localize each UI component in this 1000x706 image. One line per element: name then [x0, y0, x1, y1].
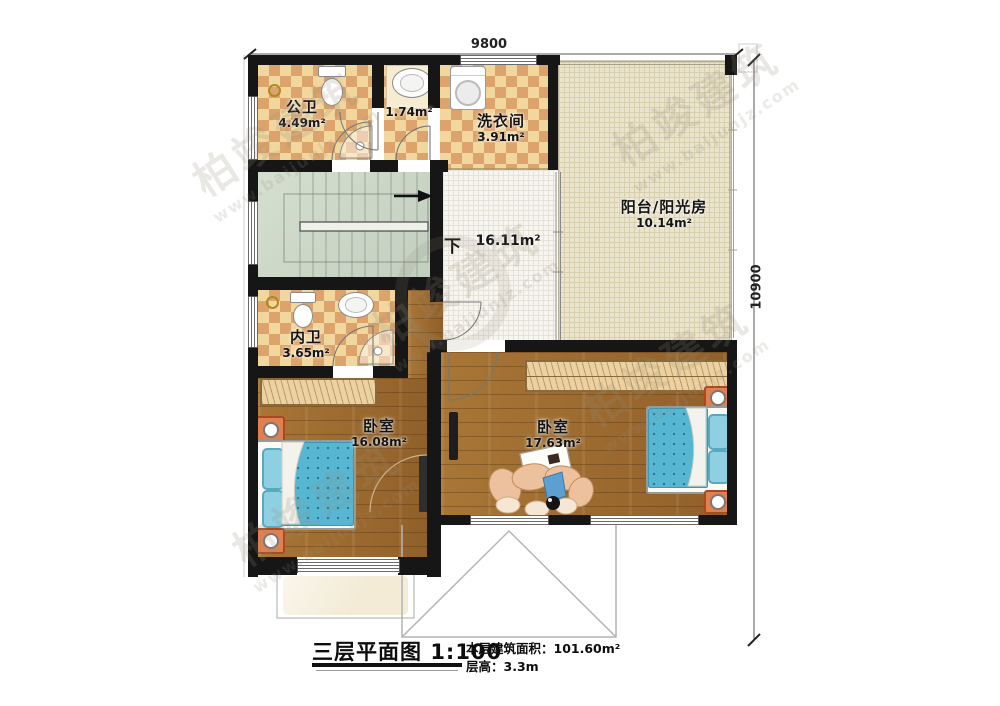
sofa: [483, 461, 597, 517]
dimension-right-label: 10900: [750, 264, 765, 309]
door-arc: [370, 455, 427, 512]
room-label-private-bath: 内卫 3.65m²: [282, 328, 329, 360]
window: [590, 515, 699, 525]
wall-segment: [505, 340, 737, 352]
wall-segment: [725, 55, 737, 75]
window: [470, 515, 549, 525]
floor-height-line: 层高：3.3m: [466, 656, 539, 675]
dimension-top-label: 9800: [471, 37, 507, 52]
wall-segment: [398, 557, 441, 575]
wall-segment: [547, 515, 590, 525]
window: [248, 96, 258, 160]
balcony-outline: [277, 572, 414, 618]
floor-plan: 公卫 4.49m² 1.74m² 洗衣间 3.91m² 阳台/阳光房 10.14…: [0, 0, 1000, 706]
title-underline: [312, 663, 462, 667]
bed-sheet-fold: [282, 442, 304, 524]
window: [297, 559, 400, 573]
wall-segment: [372, 62, 384, 108]
plan-linework: [0, 0, 1000, 706]
wall-segment: [370, 160, 398, 172]
title-underline-thin: [316, 670, 458, 671]
wall-segment: [441, 515, 470, 525]
room-label-laundry: 洗衣间 3.91m²: [477, 112, 525, 144]
wall-segment: [697, 515, 737, 525]
window: [460, 55, 537, 65]
wall-segment: [548, 62, 558, 170]
room-label-bedroom-left: 卧室 16.08m²: [351, 417, 407, 449]
wall-segment: [248, 160, 332, 172]
door-arc: [449, 352, 497, 400]
room-label-bedroom-right: 卧室 17.63m²: [525, 418, 581, 450]
wall-segment: [428, 62, 440, 108]
window: [248, 201, 258, 265]
room-label-sunroom: 阳台/阳光房 10.14m²: [621, 198, 707, 230]
wall-segment: [430, 160, 448, 172]
wall-segment: [373, 366, 408, 378]
door-arc: [396, 126, 430, 160]
sunroom-glass-wall: [558, 61, 725, 65]
room-label-wash-niche: 1.74m²: [385, 105, 432, 119]
stair-railing: [300, 222, 428, 231]
window: [248, 296, 258, 348]
wall-segment: [248, 557, 297, 575]
wall-segment: [248, 366, 333, 378]
wall-segment: [727, 352, 737, 525]
wall-segment: [427, 352, 441, 577]
sliding-door: [553, 172, 563, 340]
bed-sheet-fold: [686, 408, 706, 486]
room-label-public-bath: 公卫 4.49m²: [278, 98, 325, 130]
floor-area-line: 本层建筑面积：101.60m²: [466, 638, 620, 657]
